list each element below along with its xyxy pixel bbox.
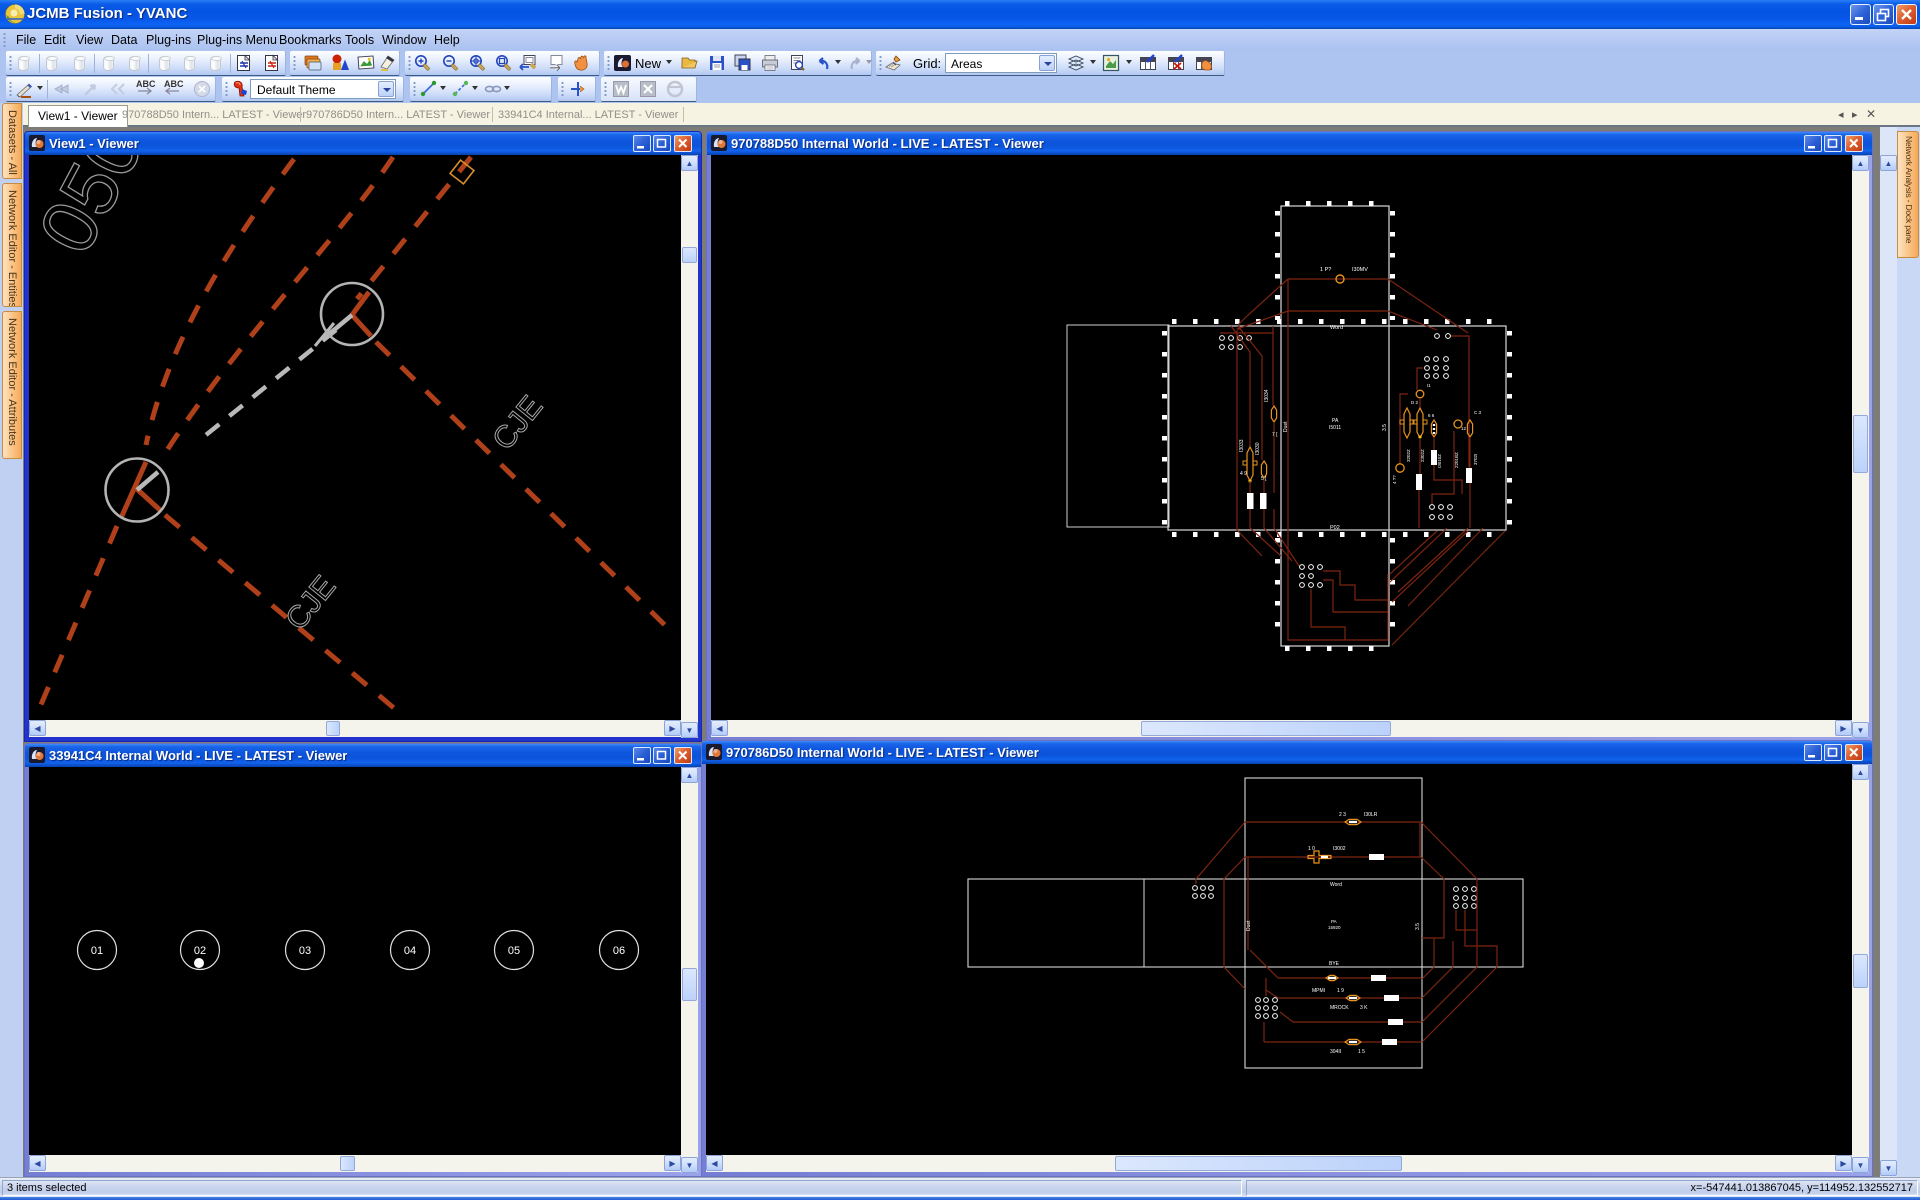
svg-text:Word: Word [1330, 882, 1342, 888]
svg-text:I30MV: I30MV [1352, 267, 1368, 273]
svg-text:I3034: I3034 [1264, 389, 1270, 402]
svg-text:6 6: 6 6 [1428, 413, 1435, 418]
svg-text:3.5: 3.5 [1382, 424, 1388, 431]
svg-text:MROCK: MROCK [1330, 1005, 1349, 1011]
svg-text:2302Z: 2302Z [1420, 449, 1425, 462]
svg-text:15920: 15920 [1328, 925, 1341, 930]
svg-text:304II: 304II [1330, 1049, 1341, 1055]
svg-text:12: 12 [1461, 426, 1467, 431]
svg-text:01: 01 [91, 945, 103, 957]
svg-text:4 ??: 4 ?? [1392, 475, 1397, 484]
svg-text:I3030: I3030 [1255, 442, 1261, 455]
svg-text:3.5: 3.5 [1415, 923, 1421, 930]
svg-text:5 [: 5 [ [1261, 476, 1267, 482]
svg-text:PA: PA [1332, 418, 1339, 424]
svg-text:04: 04 [404, 945, 416, 957]
svg-text:03: 03 [299, 945, 311, 957]
svg-text:1 0: 1 0 [1308, 846, 1315, 852]
svg-text:4 9: 4 9 [1240, 471, 1247, 477]
svg-text:1 5: 1 5 [1358, 1049, 1365, 1055]
svg-text:P02: P02 [1330, 525, 1340, 531]
svg-text:7 [: 7 [ [1272, 432, 1278, 438]
svg-text:I30LR: I30LR [1364, 812, 1378, 818]
svg-text:PA: PA [1331, 919, 1337, 924]
svg-text:3202Z: 3202Z [1406, 449, 1411, 462]
svg-text:3702I: 3702I [1473, 454, 1478, 465]
svg-text:1 P?: 1 P? [1320, 267, 1331, 273]
svg-text:I3002: I3002 [1333, 846, 1346, 852]
svg-text:2 3: 2 3 [1339, 812, 1346, 818]
svg-text:BYE: BYE [1329, 961, 1340, 967]
svg-text:05: 05 [508, 945, 520, 957]
svg-text:2201BZ: 2201BZ [1454, 452, 1459, 468]
svg-text:Word: Word [1330, 325, 1343, 331]
svg-text:I1: I1 [1427, 383, 1431, 388]
svg-text:Duet: Duet [1246, 920, 1252, 931]
svg-text:3 K: 3 K [1360, 1005, 1368, 1011]
svg-text:C 3: C 3 [1474, 410, 1482, 415]
svg-text:MPMI: MPMI [1312, 988, 1325, 994]
svg-text:I3010Z: I3010Z [1437, 454, 1442, 468]
svg-text:1 9: 1 9 [1337, 988, 1344, 994]
svg-text:I3033: I3033 [1239, 439, 1245, 452]
svg-text:06: 06 [613, 945, 625, 957]
svg-text:D 2: D 2 [1411, 400, 1419, 405]
svg-text:02: 02 [194, 945, 206, 957]
svg-text:I5011: I5011 [1329, 425, 1341, 431]
svg-text:Duet: Duet [1283, 421, 1289, 432]
